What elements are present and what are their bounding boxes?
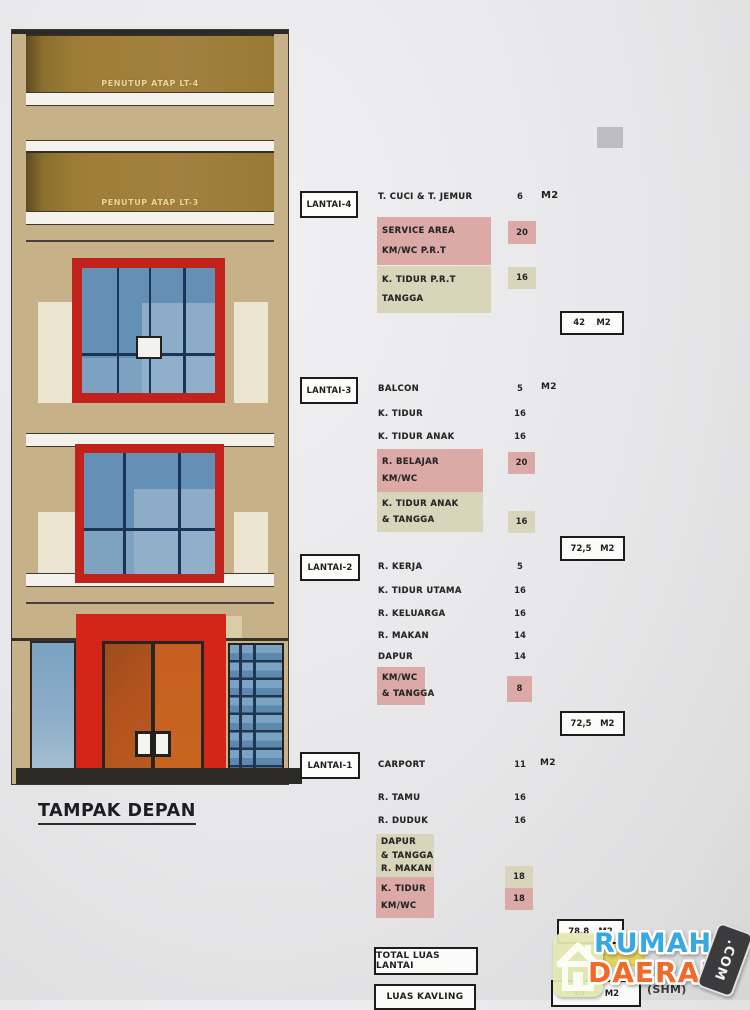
room-area-value: 16	[505, 586, 535, 596]
floor-total-lantai3: 72,5 M2	[560, 536, 625, 561]
window-mullion	[178, 453, 181, 574]
area-value-box-pink: 20	[508, 221, 536, 244]
room-label: K. TIDUR ANAK	[382, 499, 483, 509]
building-elevation-drawing: PENUTUP ATAP LT-4 PENUTUP ATAP LT-3	[12, 30, 288, 784]
highlight-box-pink: KM/WC & TANGGA	[377, 667, 425, 705]
highlight-box-beige: K. TIDUR ANAK & TANGGA	[377, 492, 483, 532]
section-label-lantai3: LANTAI-3	[300, 377, 358, 404]
room-area-value: 16	[505, 409, 535, 419]
window-mullion	[117, 268, 120, 393]
ground-line	[16, 768, 302, 784]
total-unit: M2	[596, 318, 610, 328]
facade-white-band	[26, 92, 274, 106]
area-value-box-pink: 20	[508, 452, 535, 474]
scanned-floor-area-sheet: { "title": "TAMPAK DEPAN", "building": {…	[0, 0, 750, 1000]
door-handle-plate	[153, 731, 171, 757]
middle-window	[75, 444, 224, 583]
room-area-value: 16	[505, 432, 535, 442]
room-area-value: 14	[505, 652, 535, 662]
section-label-lantai4: LANTAI-4	[300, 191, 358, 218]
glass-reflection	[84, 528, 215, 574]
luas-kavling-label-box: LUAS KAVLING	[374, 984, 476, 1010]
room-label: KM/WC P.R.T	[382, 246, 491, 256]
rumahdaerah-watermark: RUMAH DAERAH .COM	[540, 922, 750, 1004]
area-unit: M2	[540, 758, 556, 768]
total-value: 72,5	[571, 719, 592, 729]
room-label: R. KELUARGA	[378, 609, 446, 619]
room-label: CARPORT	[378, 760, 425, 770]
upper-window	[72, 258, 225, 403]
room-label: R. MAKAN	[381, 864, 434, 874]
highlight-box-pink: K. TIDUR KM/WC	[376, 877, 434, 918]
roof-band-lt3: PENUTUP ATAP LT-3	[26, 151, 274, 215]
area-value-box-pink: 18	[505, 888, 533, 910]
room-area-value: 11	[505, 760, 535, 770]
room-area-value: 16	[505, 816, 535, 826]
wall-light-panel	[38, 302, 72, 403]
door-handle-plate	[135, 731, 153, 757]
side-glass-panel	[30, 641, 76, 773]
total-unit: M2	[600, 719, 614, 729]
room-label: BALCON	[378, 384, 419, 394]
room-area-value: 5	[505, 562, 535, 572]
highlight-box-pink: SERVICE AREA KM/WC P.R.T	[377, 217, 491, 265]
area-value-box-pink: 8	[507, 676, 532, 702]
room-label: DAPUR	[381, 837, 434, 847]
total-value: 42	[573, 318, 585, 328]
section-label-lantai1: LANTAI-1	[300, 752, 360, 779]
room-label: & TANGGA	[382, 515, 483, 525]
total-unit: M2	[600, 544, 614, 554]
room-label: K. TIDUR ANAK	[378, 432, 455, 442]
room-area-value: 6	[505, 192, 535, 202]
window-vent-box	[136, 336, 162, 359]
room-area-value: 16	[505, 609, 535, 619]
area-unit: M2	[541, 382, 557, 392]
total-value: 72,5	[571, 544, 592, 554]
room-label: K. TIDUR UTAMA	[378, 586, 462, 596]
area-value-box-beige: 18	[505, 866, 533, 888]
wall-light-panel	[234, 302, 268, 403]
room-label: KM/WC	[382, 673, 425, 683]
highlight-box-pink: R. BELAJAR KM/WC	[377, 449, 483, 492]
floor-total-lantai2: 72,5 M2	[560, 711, 625, 736]
highlight-combo-box: DAPUR & TANGGA R. MAKAN K. TIDUR KM/WC	[376, 834, 434, 918]
facade-joint-line	[26, 602, 274, 604]
louver-frame-line	[253, 645, 256, 769]
section-label-lantai2: LANTAI-2	[300, 554, 360, 581]
highlight-box-beige: K. TIDUR P.R.T TANGGA	[377, 266, 491, 313]
room-label: K. TIDUR P.R.T	[382, 275, 491, 285]
room-label: SERVICE AREA	[382, 226, 491, 236]
room-label: K. TIDUR	[381, 884, 434, 894]
facade-joint-line	[26, 240, 274, 242]
louver-panel	[228, 643, 284, 771]
room-label: R. MAKAN	[378, 631, 429, 641]
louver-frame-line	[239, 645, 242, 769]
facade-white-band	[26, 211, 274, 225]
room-label: & TANGGA	[381, 851, 434, 861]
highlight-box-beige: DAPUR & TANGGA R. MAKAN	[376, 834, 434, 877]
area-value-box-beige: 16	[508, 267, 536, 289]
room-area-value: 16	[505, 793, 535, 803]
room-label: R. KERJA	[378, 562, 422, 572]
floor-total-lantai4: 42 M2	[560, 311, 624, 335]
window-mullion	[183, 268, 186, 393]
area-value-box-beige: 16	[508, 511, 535, 533]
area-unit: M2	[541, 190, 559, 201]
room-label: & TANGGA	[382, 689, 425, 699]
room-label: DAPUR	[378, 652, 413, 662]
door-handles	[135, 731, 171, 757]
drawing-title: TAMPAK DEPAN	[38, 801, 196, 825]
roof-band-lt4: PENUTUP ATAP LT-4	[26, 34, 274, 96]
room-area-value: 5	[505, 384, 535, 394]
room-label: R. BELAJAR	[382, 457, 483, 467]
watermark-com-text: .COM	[711, 937, 740, 982]
room-label: KM/WC	[382, 474, 483, 484]
room-label: KM/WC	[381, 901, 434, 911]
room-label: K. TIDUR	[378, 409, 423, 419]
room-label: R. DUDUK	[378, 816, 428, 826]
window-mullion	[149, 268, 152, 393]
scan-artifact	[597, 127, 623, 148]
room-label: R. TAMU	[378, 793, 420, 803]
window-rail	[84, 528, 215, 531]
room-label: TANGGA	[382, 294, 491, 304]
room-area-value: 14	[505, 631, 535, 641]
room-label: T. CUCI & T. JEMUR	[378, 192, 472, 202]
window-mullion	[123, 453, 126, 574]
total-luas-lantai-label-box: TOTAL LUAS LANTAI	[374, 947, 478, 975]
entrance-double-door	[102, 641, 204, 775]
